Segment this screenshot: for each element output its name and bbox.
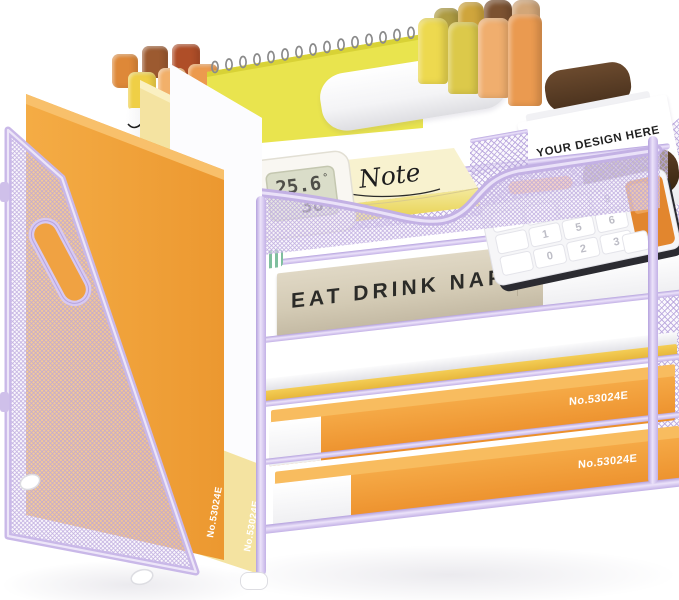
clip-tab (0, 182, 9, 202)
product-photo-stage: YOUR DESIGN HERE EAT DRINK NAP (0, 0, 679, 600)
front-right-post (648, 136, 658, 484)
foot (129, 567, 154, 587)
marker-pale-yellow (418, 18, 448, 84)
marker-yellow (448, 22, 480, 94)
clip-tab (0, 392, 9, 412)
lower-folder-label: No.53024E (578, 452, 637, 471)
front-left-post (256, 196, 266, 576)
unit-foot (240, 572, 268, 590)
upper-folder-label: No.53024E (569, 389, 628, 408)
